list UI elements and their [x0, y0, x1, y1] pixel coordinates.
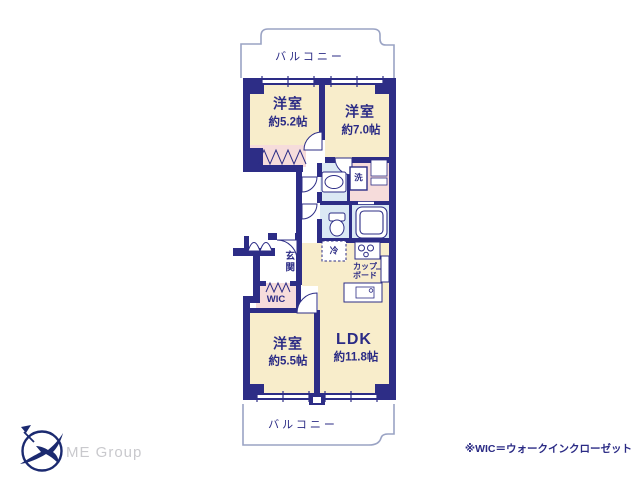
- storage-cabinet: [371, 160, 387, 185]
- fridge-label: 冷: [330, 246, 339, 255]
- ldk-size-label: 約11.8帖: [334, 352, 379, 365]
- door-washroom: [302, 177, 317, 192]
- floorplan-page: バルコニー 洋室 約5.2帖 洋室 約7.0帖 洗 冷 カップ ボード 玄関 W…: [0, 0, 640, 480]
- washbasin-icon: [322, 172, 346, 192]
- ldk-name-label: LDK: [336, 331, 372, 349]
- stove-icon: [355, 242, 380, 259]
- bottom-wall-notch: [313, 397, 321, 403]
- genkan-label: 玄関: [283, 251, 293, 274]
- western-room-70-floor: [325, 85, 389, 158]
- wic-label: WIC: [267, 295, 285, 305]
- door-toilet: [302, 204, 317, 219]
- laundry-label: 洗: [354, 173, 363, 182]
- bird-in-circle-logo-icon: [20, 425, 63, 471]
- cupboard-label: カップ ボード: [353, 262, 377, 280]
- room52-name-label: 洋室: [273, 96, 303, 111]
- cupboard-label-line2: ボード: [353, 271, 377, 280]
- cupboard-label-line1: カップ: [353, 262, 377, 271]
- room70-name-label: 洋室: [345, 104, 375, 119]
- balcony-top-label: バルコニー: [275, 51, 345, 63]
- wic-footnote: ※WIC＝ウォークインクローゼット: [465, 441, 632, 456]
- kitchen-sink-icon: [344, 283, 382, 302]
- western-room-55-floor: [250, 313, 315, 393]
- bathtub-icon: [356, 207, 387, 238]
- floor-plan-drawing: [0, 0, 640, 480]
- balcony-bottom-label: バルコニー: [268, 419, 338, 431]
- logo-text: ME Group: [66, 444, 142, 461]
- room70-size-label: 約7.0帖: [342, 125, 381, 138]
- room55-name-label: 洋室: [273, 336, 303, 351]
- room55-size-label: 約5.5帖: [269, 356, 308, 369]
- bath-sliding-door: [358, 202, 374, 205]
- toilet-icon: [329, 213, 345, 236]
- room52-size-label: 約5.2帖: [269, 117, 308, 130]
